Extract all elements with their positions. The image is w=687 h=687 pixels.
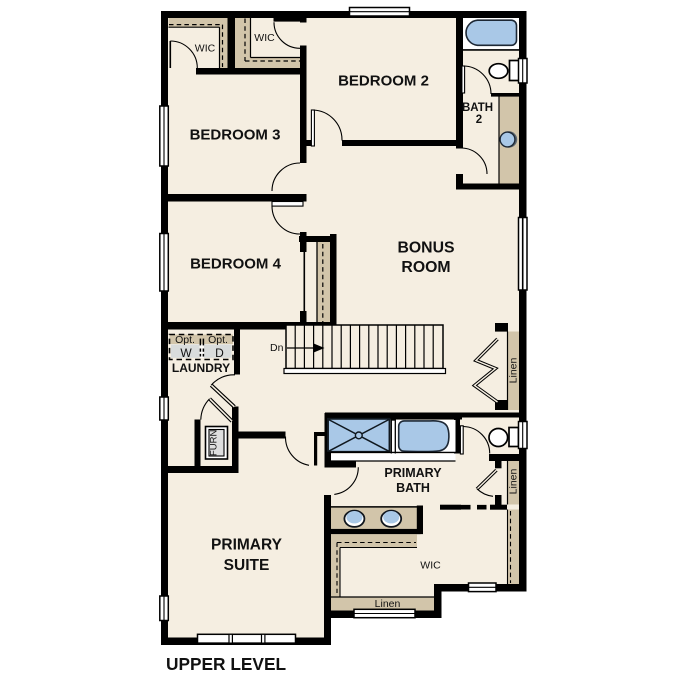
svg-text:LAUNDRY: LAUNDRY xyxy=(172,361,230,375)
svg-text:Opt.: Opt. xyxy=(175,334,195,346)
svg-text:Linen: Linen xyxy=(375,598,401,610)
svg-text:Linen: Linen xyxy=(507,358,519,384)
svg-text:Dn: Dn xyxy=(270,342,284,354)
svg-text:2: 2 xyxy=(476,114,482,126)
svg-text:FURN: FURN xyxy=(209,429,220,456)
svg-text:PRIMARY: PRIMARY xyxy=(384,466,442,480)
svg-text:D: D xyxy=(215,346,224,360)
svg-text:BEDROOM 2: BEDROOM 2 xyxy=(338,73,429,90)
svg-text:WIC: WIC xyxy=(420,560,441,572)
svg-text:SUITE: SUITE xyxy=(224,557,270,574)
svg-text:WIC: WIC xyxy=(254,32,275,44)
svg-text:UPPER LEVEL: UPPER LEVEL xyxy=(166,654,286,674)
svg-text:BATH: BATH xyxy=(462,102,493,114)
svg-text:ROOM: ROOM xyxy=(401,259,450,276)
svg-text:PRIMARY: PRIMARY xyxy=(211,536,283,553)
svg-text:W: W xyxy=(180,346,192,360)
svg-text:BATH: BATH xyxy=(396,481,430,495)
svg-text:Opt.: Opt. xyxy=(208,334,228,346)
svg-text:BEDROOM 4: BEDROOM 4 xyxy=(190,256,282,273)
svg-text:Linen: Linen xyxy=(507,469,519,495)
svg-text:BONUS: BONUS xyxy=(397,240,454,257)
svg-text:BEDROOM 3: BEDROOM 3 xyxy=(190,127,281,144)
svg-text:WIC: WIC xyxy=(195,43,216,55)
